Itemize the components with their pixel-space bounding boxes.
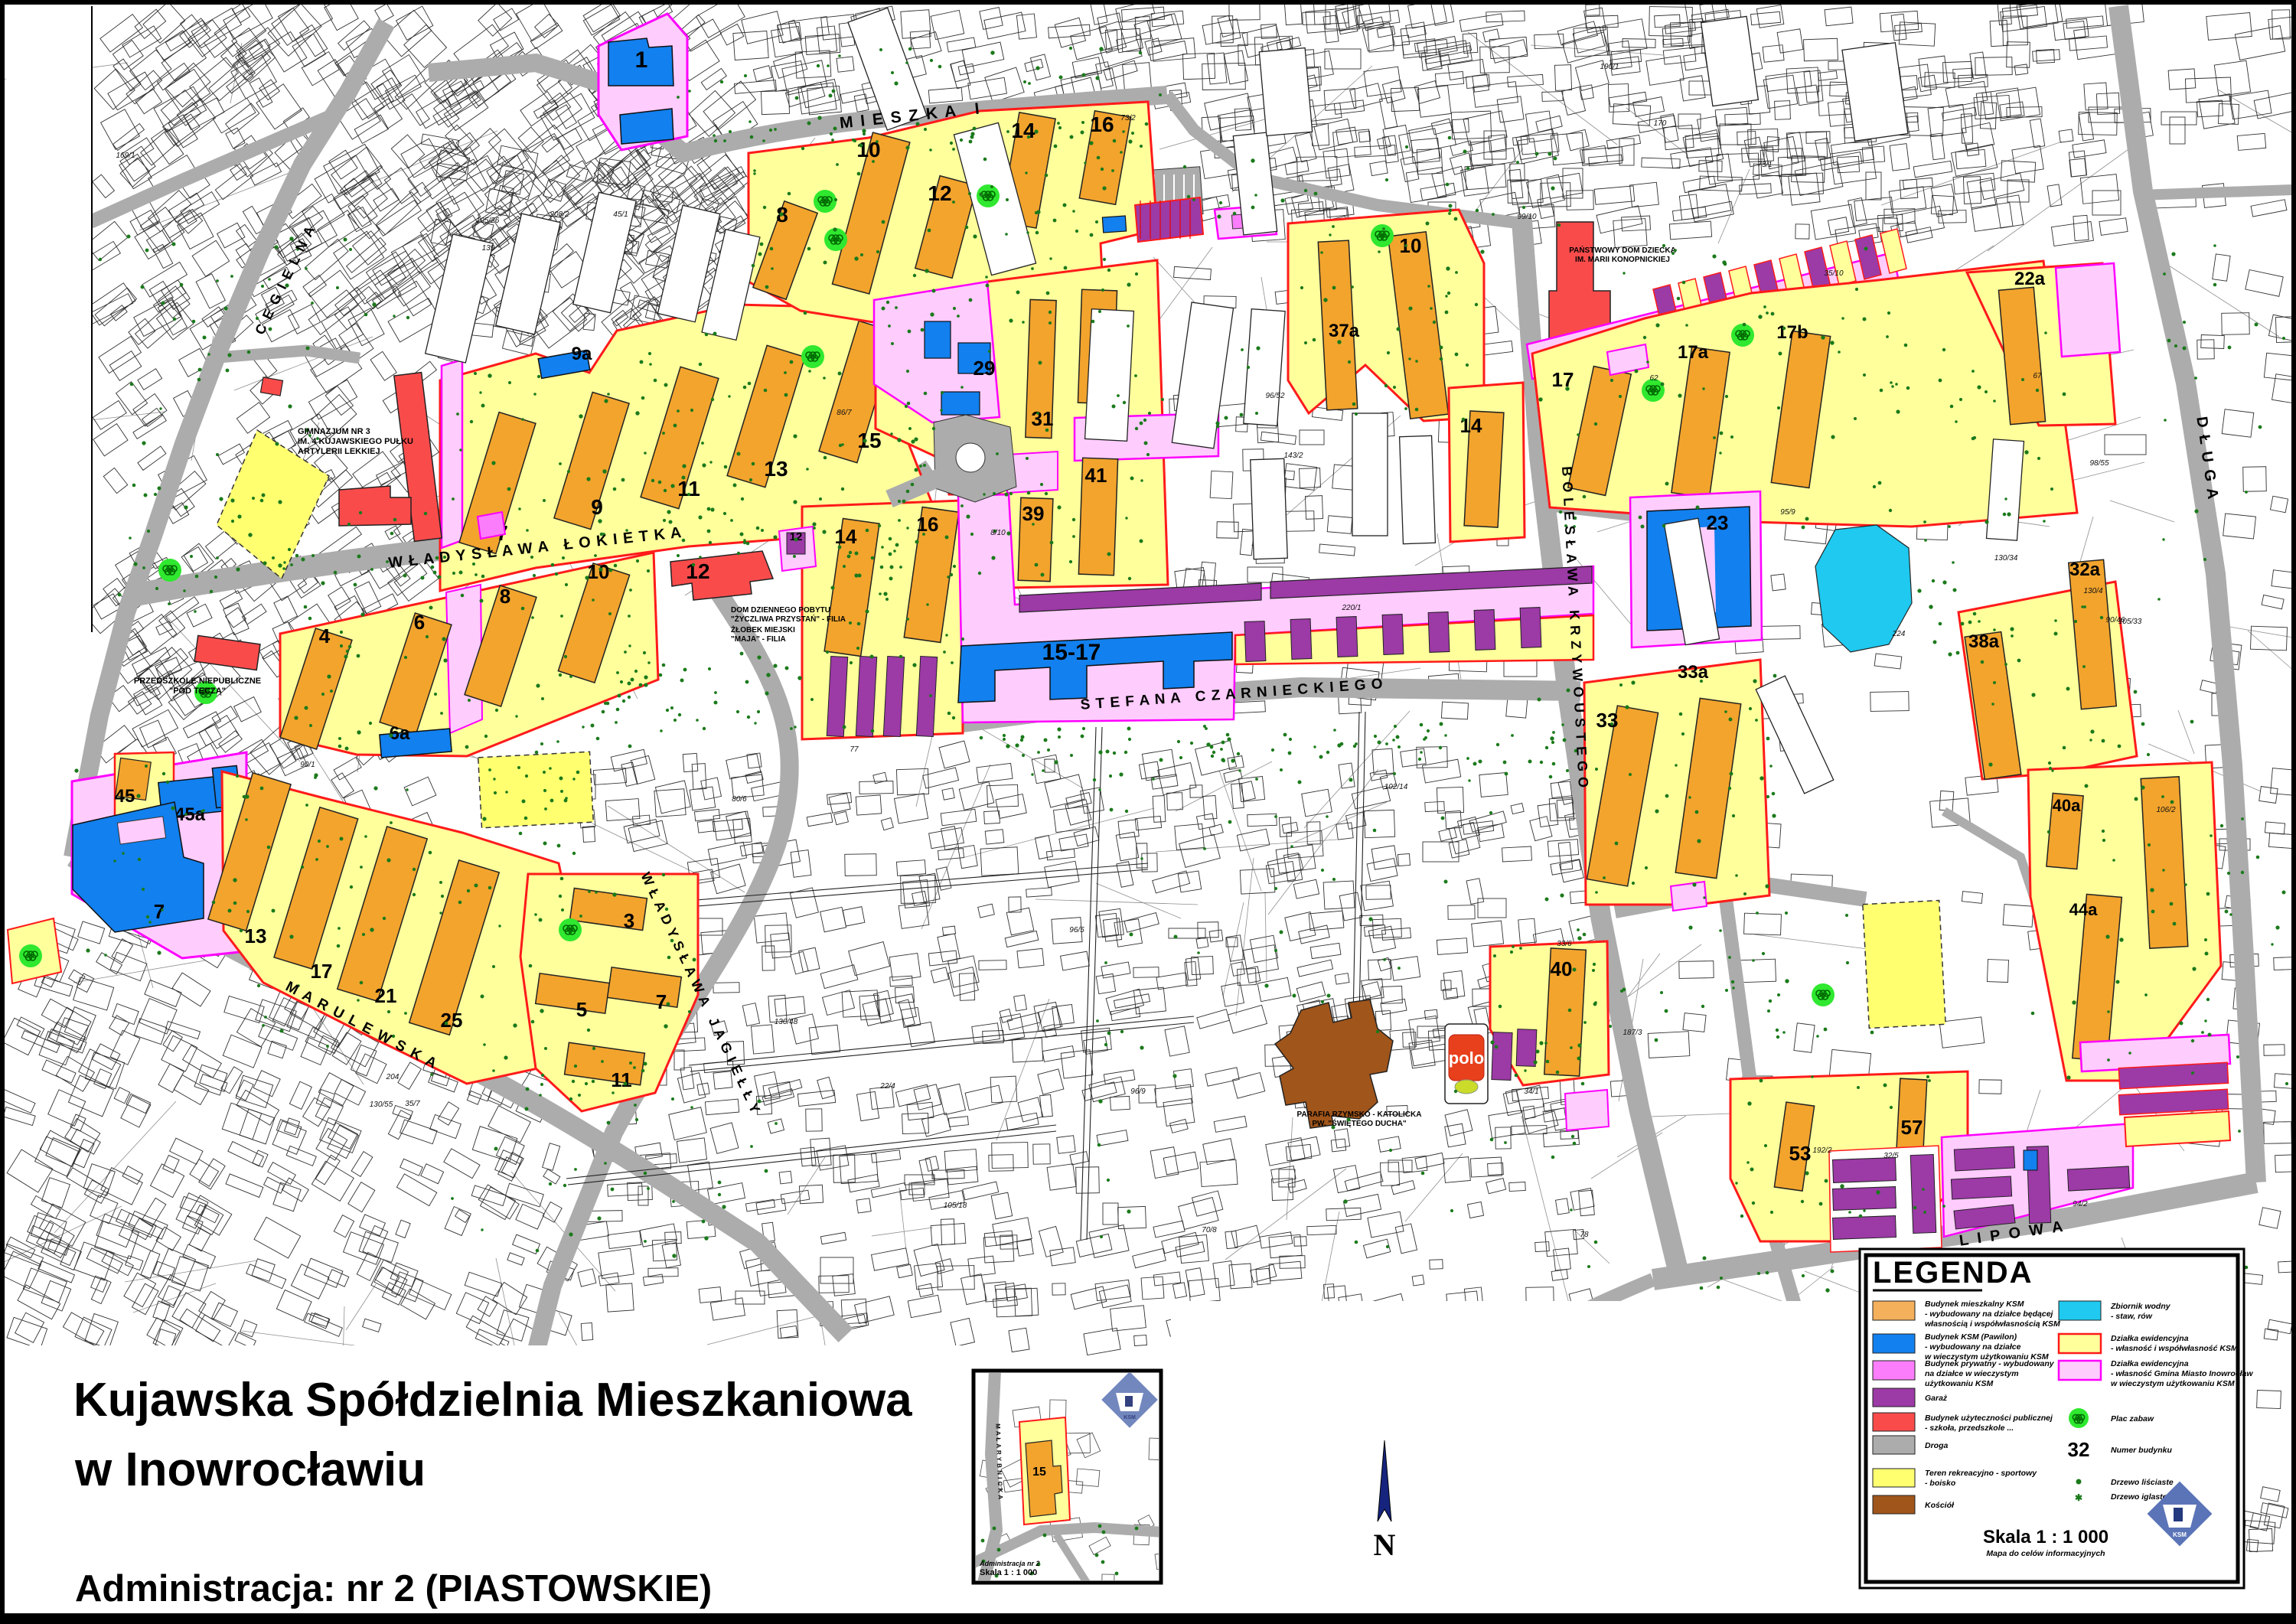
svg-text:Budynek KSM (Pawilon): Budynek KSM (Pawilon) [1925,1332,2017,1342]
svg-text:w Inowrocławiu: w Inowrocławiu [74,1443,426,1496]
svg-text:73/1: 73/1 [1757,161,1772,169]
svg-text:37a: 37a [1329,321,1360,341]
svg-text:99/10: 99/10 [1517,213,1536,221]
svg-text:- własność i współwłasność KSM: - własność i współwłasność KSM [2111,1344,2238,1353]
svg-text:90/1: 90/1 [300,761,315,769]
svg-text:14: 14 [835,525,857,548]
svg-text:13: 13 [764,457,788,481]
svg-text:Kościół: Kościół [1925,1501,1955,1510]
svg-text:12: 12 [928,181,951,205]
svg-text:"ŻYCZLIWA PRZYSTAŃ" - FILIA: "ŻYCZLIWA PRZYSTAŃ" - FILIA [731,614,846,624]
svg-text:Budynek mieszkalny KSM: Budynek mieszkalny KSM [1925,1300,2024,1309]
svg-text:"MAJA" - FILIA: "MAJA" - FILIA [731,635,786,644]
svg-text:Drzewo iglaste: Drzewo iglaste [2111,1492,2167,1502]
svg-text:10: 10 [1400,234,1422,257]
svg-text:GIMNAZJUM NR 3: GIMNAZJUM NR 3 [298,427,370,436]
svg-text:220/1: 220/1 [1341,604,1361,612]
svg-text:Skala 1 : 1 000: Skala 1 : 1 000 [1983,1527,2108,1547]
svg-text:Kujawska Spółdzielnia Mieszkan: Kujawska Spółdzielnia Mieszkaniowa [73,1374,912,1427]
svg-text:Administracja: nr 2 (PIASTOWSK: Administracja: nr 2 (PIASTOWSKIE) [75,1568,712,1609]
svg-text:Zbiornik wodny: Zbiornik wodny [2110,1302,2171,1311]
svg-text:- boisko: - boisko [1925,1479,1956,1488]
svg-text:25: 25 [441,1009,463,1032]
svg-text:15-17: 15-17 [1042,640,1101,665]
svg-text:208/2: 208/2 [549,210,569,219]
svg-text:✱: ✱ [2075,1492,2082,1503]
svg-text:130/48: 130/48 [775,1018,798,1026]
svg-text:5: 5 [576,998,587,1021]
svg-text:192/2: 192/2 [1812,1146,1831,1155]
svg-text:17b: 17b [1776,322,1808,343]
svg-text:KSM: KSM [1124,1415,1136,1420]
svg-text:- staw, rów: - staw, rów [2111,1312,2153,1321]
svg-text:polo: polo [1449,1048,1484,1068]
svg-text:KSM: KSM [2173,1531,2187,1538]
svg-text:45: 45 [115,786,135,807]
svg-text:224: 224 [1892,630,1906,638]
svg-text:w wieczystym użytkowaniu KSM: w wieczystym użytkowaniu KSM [2111,1379,2235,1388]
svg-text:29: 29 [974,357,996,380]
svg-text:62: 62 [1649,374,1658,383]
svg-text:96/52: 96/52 [1265,392,1284,400]
svg-text:PW. "ŚWIĘTEGO DUCHA": PW. "ŚWIĘTEGO DUCHA" [1312,1118,1407,1128]
svg-text:78: 78 [1580,1231,1589,1239]
svg-text:45/1: 45/1 [613,210,628,219]
svg-text:PARAFIA RZYMSKO - KATOLICKA: PARAFIA RZYMSKO - KATOLICKA [1297,1110,1422,1119]
svg-text:105/18: 105/18 [944,1202,967,1210]
svg-text:170: 170 [1654,119,1667,128]
svg-text:13: 13 [245,925,267,947]
svg-text:12: 12 [686,559,709,583]
svg-text:15: 15 [857,429,881,452]
svg-text:33/6: 33/6 [1557,940,1572,948]
svg-text:17a: 17a [1678,342,1709,363]
svg-text:32a: 32a [2069,559,2101,580]
svg-text:105/26: 105/26 [476,217,500,225]
svg-text:Działka ewidencyjna: Działka ewidencyjna [2111,1334,2189,1343]
svg-text:130/34: 130/34 [1994,554,2018,563]
svg-text:45a: 45a [174,804,206,825]
svg-text:8/10: 8/10 [990,529,1006,537]
svg-text:7: 7 [154,900,165,923]
svg-text:16: 16 [917,513,939,536]
svg-text:130/4: 130/4 [2083,587,2102,595]
svg-text:Działka ewidencyjna: Działka ewidencyjna [2111,1359,2189,1368]
svg-text:32/5: 32/5 [1883,1152,1899,1160]
svg-text:169/1: 169/1 [116,152,135,160]
svg-text:17: 17 [1552,368,1574,391]
svg-text:94/2: 94/2 [2073,1200,2088,1208]
svg-text:73/2: 73/2 [1120,114,1136,122]
svg-text:14: 14 [1460,414,1482,437]
svg-text:7: 7 [656,990,667,1013]
svg-text:57: 57 [1901,1116,1923,1139]
svg-text:własnością i współwłasnością K: własnością i współwłasnością KSM [1925,1319,2060,1329]
svg-text:40a: 40a [2053,796,2081,815]
svg-text:Droga: Droga [1925,1441,1948,1450]
svg-text:80/6: 80/6 [732,795,747,804]
svg-text:96/9: 96/9 [1130,1088,1146,1096]
svg-text:67: 67 [2033,372,2042,380]
svg-text:14: 14 [1011,119,1035,142]
svg-text:9: 9 [591,495,603,519]
svg-text:11: 11 [677,477,700,501]
svg-text:35/7: 35/7 [405,1100,420,1108]
svg-text:187/3: 187/3 [1623,1029,1642,1037]
svg-text:Drzewo liściaste: Drzewo liściaste [2111,1478,2174,1487]
svg-text:IM. 4 KUJAWSKIEGO PUŁKU: IM. 4 KUJAWSKIEGO PUŁKU [298,437,413,446]
svg-text:Administracja nr 2: Administracja nr 2 [979,1560,1040,1567]
svg-text:23: 23 [1707,511,1729,534]
svg-text:95/9: 95/9 [1780,508,1795,517]
svg-text:21: 21 [375,984,397,1007]
svg-text:34/1: 34/1 [1524,1088,1538,1096]
svg-text:IM. MARII KONOPNICKIEJ: IM. MARII KONOPNICKIEJ [1575,256,1670,264]
svg-text:96/5: 96/5 [1069,926,1084,934]
svg-text:10: 10 [588,560,610,583]
svg-text:DOM DZIENNEGO POBYTU: DOM DZIENNEGO POBYTU [731,606,830,615]
svg-text:98/55: 98/55 [2089,459,2108,468]
svg-text:na działce w wieczystym: na działce w wieczystym [1925,1369,2019,1378]
svg-text:- wybudowany na działce będące: - wybudowany na działce będącej [1925,1309,2054,1319]
svg-text:204: 204 [386,1073,400,1081]
svg-text:Budynek użyteczności publiczne: Budynek użyteczności publicznej [1925,1414,2053,1423]
svg-text:31: 31 [1032,407,1054,430]
svg-text:N: N [1374,1528,1396,1562]
svg-text:4: 4 [319,624,331,647]
svg-text:38a: 38a [1968,631,2000,652]
svg-text:35/10: 35/10 [1824,269,1843,278]
svg-text:LEGENDA: LEGENDA [1873,1256,2033,1290]
svg-text:190/1: 190/1 [1600,63,1619,71]
svg-text:40: 40 [1551,957,1573,980]
svg-text:41: 41 [1085,464,1107,487]
svg-text:90/46: 90/46 [2105,616,2125,624]
svg-text:Plac zabaw: Plac zabaw [2111,1414,2154,1423]
svg-text:3: 3 [624,909,634,932]
svg-text:33a: 33a [1678,662,1709,683]
svg-text:Garaż: Garaż [1925,1394,1948,1403]
svg-text:- własność Gmina Miasto Inowro: - własność Gmina Miasto Inowrocław [2111,1369,2253,1378]
svg-text:6: 6 [414,611,425,634]
svg-text:1: 1 [635,47,648,73]
svg-text:15: 15 [1032,1466,1046,1479]
svg-text:PRZEDSZKOLE NIEPUBLICZNE: PRZEDSZKOLE NIEPUBLICZNE [134,677,261,686]
svg-text:PAŃSTWOWY DOM DZIECKA: PAŃSTWOWY DOM DZIECKA [1569,245,1676,255]
svg-text:Mapa do celów informacyjnych: Mapa do celów informacyjnych [1986,1549,2105,1558]
svg-text:8: 8 [500,585,510,608]
svg-text:53: 53 [1789,1142,1812,1165]
svg-text:- wybudowany na działce: - wybudowany na działce [1925,1342,2021,1352]
svg-text:Skala 1 : 1 000: Skala 1 : 1 000 [980,1568,1037,1577]
svg-text:130/55: 130/55 [370,1101,393,1109]
svg-text:22/4: 22/4 [879,1082,895,1091]
svg-text:106/2: 106/2 [2156,806,2175,814]
svg-text:17: 17 [311,960,333,983]
svg-text:9a: 9a [572,344,592,364]
svg-text:86/7: 86/7 [837,409,852,417]
svg-text:32: 32 [2068,1438,2090,1461]
svg-text:"POD TĘCZĄ": "POD TĘCZĄ" [169,686,226,696]
svg-text:Teren rekreacyjno - sportowy: Teren rekreacyjno - sportowy [1925,1469,2037,1478]
svg-text:102/14: 102/14 [1384,783,1408,791]
svg-text:77: 77 [850,745,859,754]
svg-text:22a: 22a [2014,269,2046,289]
svg-text:11: 11 [611,1068,632,1091]
svg-text:- szkoła, przedszkole ...: - szkoła, przedszkole ... [1925,1423,2014,1433]
svg-text:33: 33 [1596,709,1619,732]
svg-text:139: 139 [482,244,495,253]
svg-text:143/2: 143/2 [1283,452,1303,460]
svg-text:6a: 6a [390,723,410,744]
svg-text:16: 16 [1090,113,1114,136]
svg-text:ŻŁOBEK MIEJSKI: ŻŁOBEK MIEJSKI [731,624,795,634]
svg-text:44a: 44a [2069,900,2098,919]
svg-text:39: 39 [1022,502,1045,525]
svg-text:użytkowaniu KSM: użytkowaniu KSM [1925,1379,1994,1388]
svg-text:ARTYLERII LEKKIEJ: ARTYLERII LEKKIEJ [298,447,380,456]
svg-text:70/8: 70/8 [1202,1226,1217,1234]
svg-text:Numer budynku: Numer budynku [2111,1446,2173,1455]
svg-text:Budynek prywatny - wybudowany: Budynek prywatny - wybudowany [1925,1359,2055,1368]
